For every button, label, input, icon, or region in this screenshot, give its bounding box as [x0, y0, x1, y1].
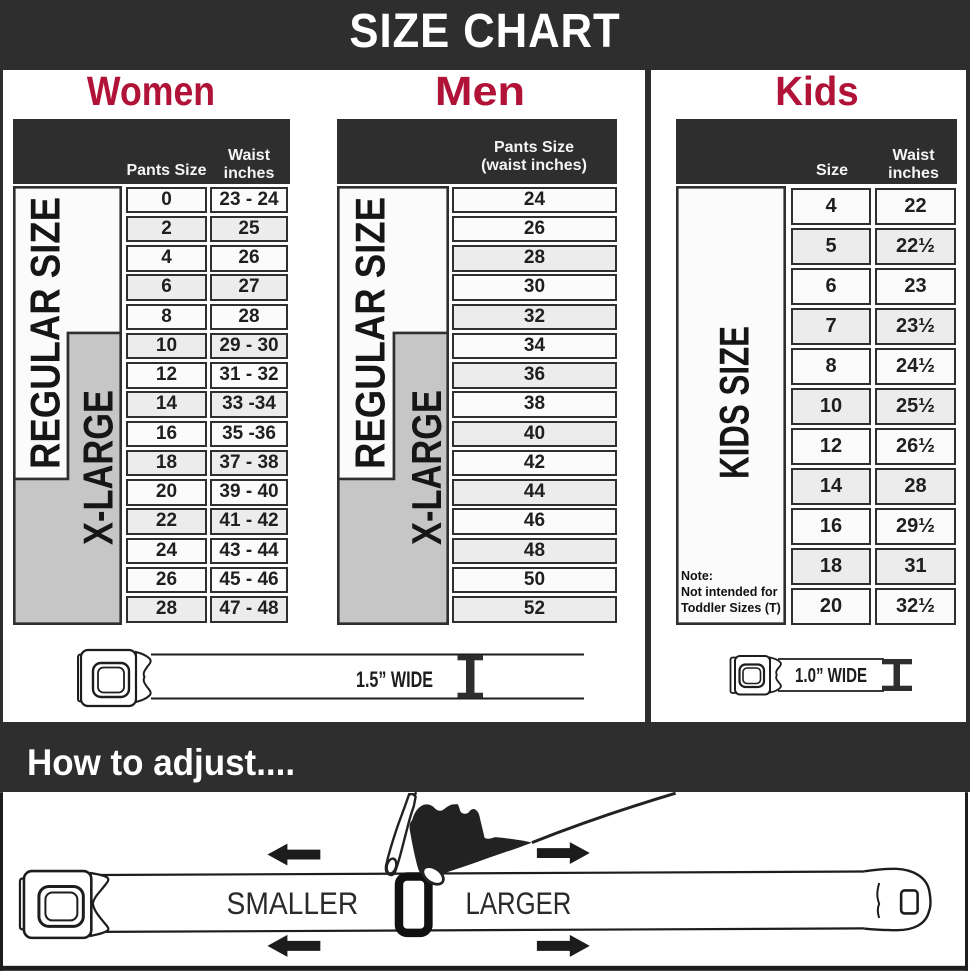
svg-text:X-LARGE: X-LARGE [74, 390, 121, 545]
svg-text:SMALLER: SMALLER [227, 885, 359, 921]
svg-text:REGULAR SIZE: REGULAR SIZE [21, 197, 68, 469]
svg-text:1.0” WIDE: 1.0” WIDE [795, 665, 867, 687]
svg-text:LARGER: LARGER [466, 885, 572, 921]
svg-text:X-LARGE: X-LARGE [403, 390, 449, 545]
svg-text:1.5” WIDE: 1.5” WIDE [356, 667, 433, 692]
svg-text:KIDS SIZE: KIDS SIZE [710, 326, 757, 479]
svg-text:REGULAR SIZE: REGULAR SIZE [346, 197, 393, 469]
